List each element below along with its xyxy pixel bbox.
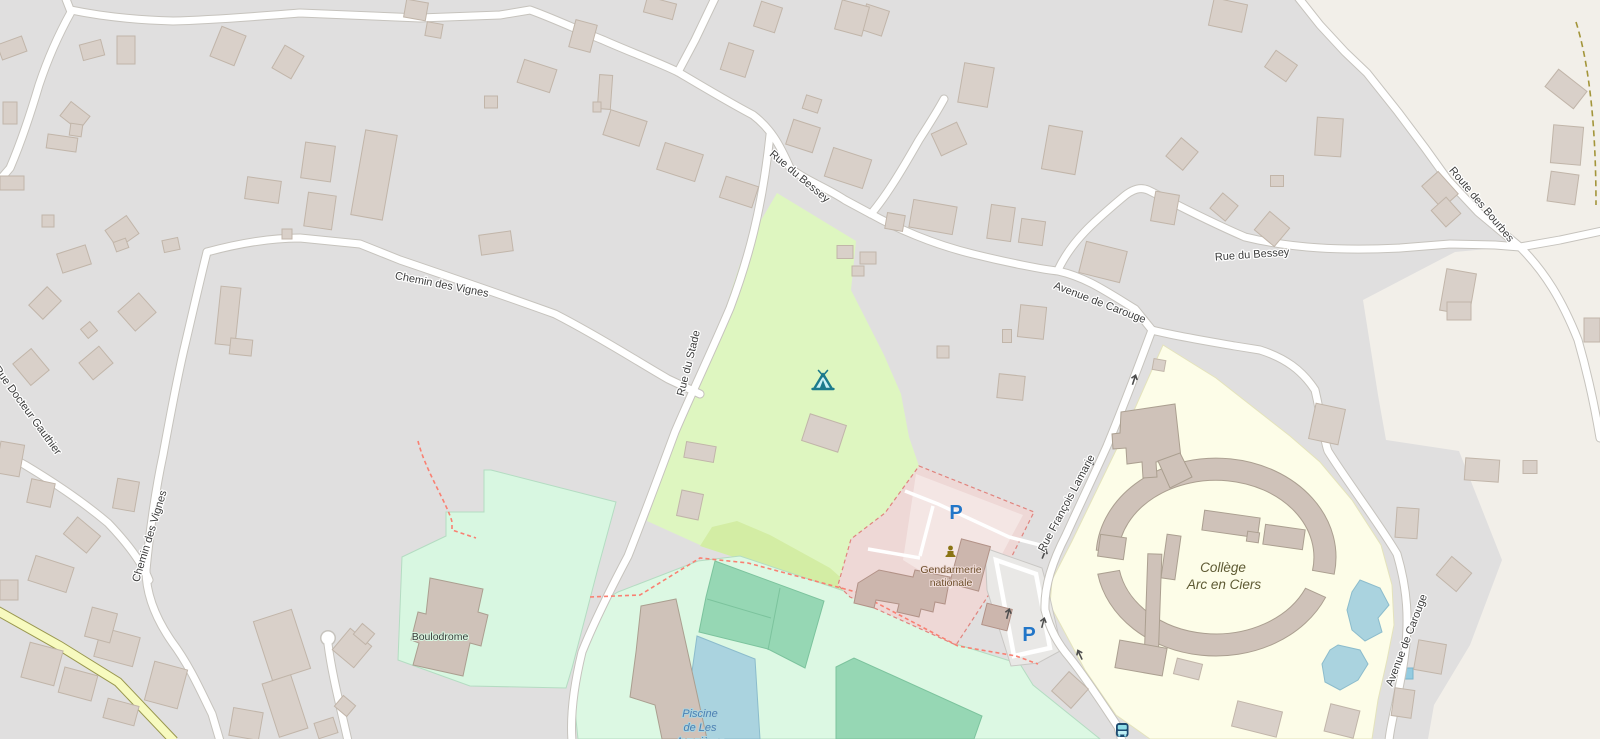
svg-text:de Les: de Les xyxy=(683,722,717,734)
svg-text:Collège: Collège xyxy=(1200,560,1246,575)
svg-text:Gendarmerie: Gendarmerie xyxy=(920,564,981,576)
svg-text:Piscine: Piscine xyxy=(682,708,717,720)
svg-text:nationale: nationale xyxy=(930,577,973,589)
svg-text:P: P xyxy=(1022,624,1035,646)
svg-text:Arc en Ciers: Arc en Ciers xyxy=(1186,577,1262,592)
svg-text:P: P xyxy=(949,502,962,524)
svg-text:Boulodrome: Boulodrome xyxy=(412,631,469,643)
